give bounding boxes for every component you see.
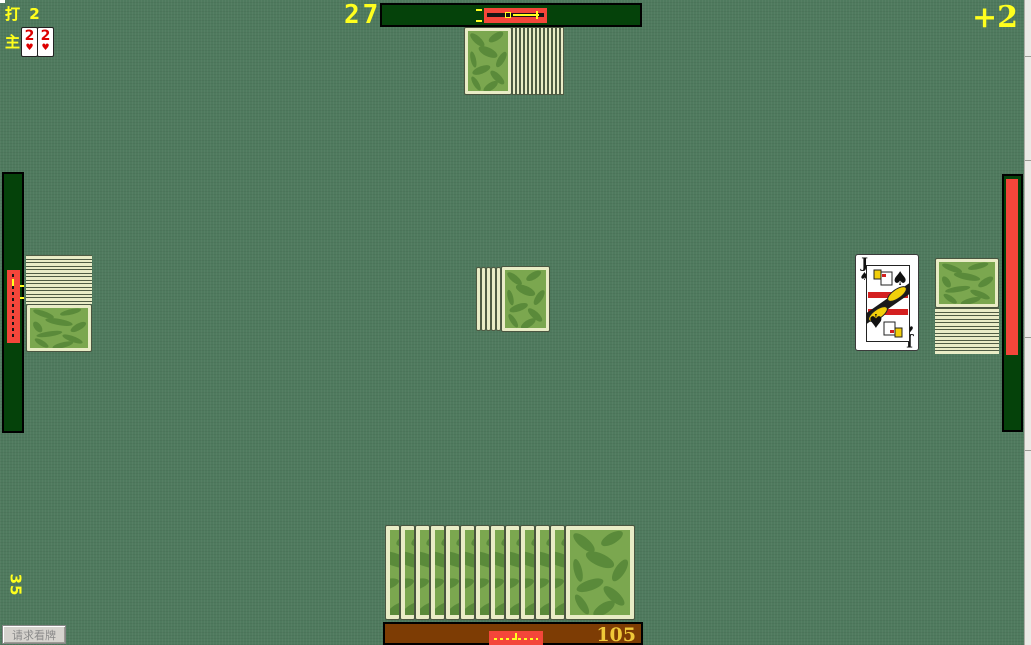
south-status-bar: 105	[383, 622, 643, 645]
east-status-bar	[1002, 174, 1023, 432]
east-card-edges	[935, 308, 999, 354]
card-back-pattern	[468, 31, 508, 91]
hand-card[interactable]	[385, 525, 400, 620]
jack-court-artwork: ♠ ♠	[866, 265, 910, 342]
card-back-pattern	[435, 530, 444, 615]
trump-cards: 2 ♥ 2 ♥	[21, 27, 54, 57]
south-score: 105	[596, 624, 636, 645]
west-score: 35	[6, 574, 24, 597]
bonus-score: +2	[972, 0, 1018, 35]
card-back-pattern	[555, 530, 564, 615]
west-card-stack	[26, 255, 92, 353]
svg-text:♠: ♠	[867, 309, 884, 331]
card-back-pattern	[525, 530, 534, 615]
card-back	[501, 266, 550, 332]
hand-card[interactable]	[400, 525, 415, 620]
card-rank: 2	[25, 29, 35, 44]
card-edge	[560, 27, 564, 95]
trump-card-1: 2 ♥	[21, 27, 38, 57]
hand-card[interactable]	[535, 525, 550, 620]
game-table: 打 2 主 2 ♥ 2 ♥ 27 +2	[0, 0, 1031, 645]
hand-card[interactable]	[520, 525, 535, 620]
west-score-wrap: 35	[4, 566, 26, 604]
west-status-bar: 35	[2, 172, 24, 433]
hand-card[interactable]	[430, 525, 445, 620]
card-back	[464, 27, 512, 95]
hand-card[interactable]	[415, 525, 430, 620]
trump-card-2: 2 ♥	[37, 27, 54, 57]
card-back-pattern	[390, 530, 399, 615]
south-hand	[385, 525, 635, 620]
hand-card[interactable]	[475, 525, 490, 620]
hand-card[interactable]	[445, 525, 460, 620]
center-card-edges	[476, 267, 501, 331]
card-back-pattern	[450, 530, 459, 615]
north-timer-indicator	[484, 8, 547, 23]
card-back-pattern	[30, 308, 88, 348]
card-back-pattern	[495, 530, 504, 615]
card-back	[26, 304, 92, 352]
east-card-stack	[935, 258, 999, 354]
north-card-stack	[464, 27, 574, 95]
card-edge	[935, 350, 999, 354]
played-card-jack-of-spades: J ♠ J ♠ ♠ ♠	[855, 254, 919, 351]
declare-rank-label: 打 2	[5, 3, 42, 24]
card-rank: 2	[41, 29, 51, 44]
hand-card[interactable]	[550, 525, 565, 620]
center-card-stack	[476, 266, 556, 332]
card-back-pattern	[420, 530, 429, 615]
hand-card[interactable]	[565, 525, 635, 620]
north-card-edges	[512, 27, 564, 95]
west-timer-indicator	[7, 270, 20, 343]
card-back-pattern	[570, 530, 630, 615]
south-timer-indicator	[489, 631, 543, 645]
trump-label: 主	[5, 31, 20, 52]
card-back-pattern	[510, 530, 519, 615]
svg-text:♠: ♠	[891, 268, 908, 290]
card-back-pattern	[465, 530, 474, 615]
hand-card[interactable]	[505, 525, 520, 620]
card-back-pattern	[480, 530, 489, 615]
hand-card[interactable]	[460, 525, 475, 620]
card-back-pattern	[939, 262, 995, 304]
card-back	[935, 258, 999, 308]
request-view-cards-button[interactable]: 请求看牌	[2, 625, 66, 644]
heart-suit-icon: ♥	[41, 44, 49, 53]
hand-card[interactable]	[490, 525, 505, 620]
west-card-edges	[26, 255, 92, 304]
card-back-pattern	[540, 530, 549, 615]
card-back-pattern	[505, 270, 546, 328]
card-back-pattern	[405, 530, 414, 615]
right-scrollbar[interactable]	[1024, 0, 1031, 645]
north-status-bar	[380, 3, 642, 27]
heart-suit-icon: ♥	[25, 44, 33, 53]
east-timer-indicator	[1006, 179, 1018, 355]
north-counter: 27	[344, 0, 381, 30]
